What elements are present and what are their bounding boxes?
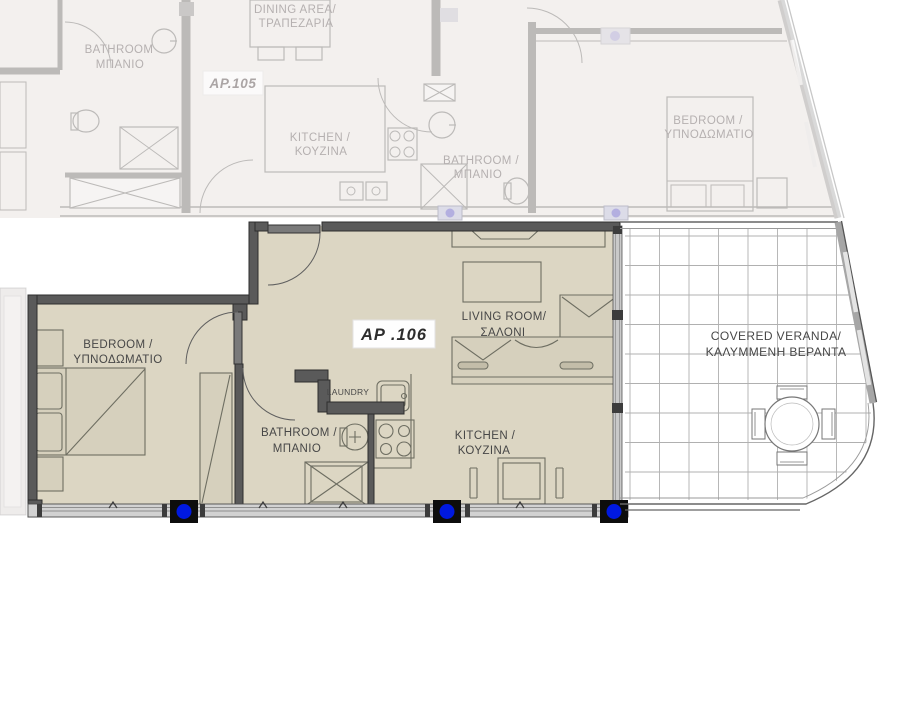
ap105-bathroom-right-label-l2: ΜΠΑΝΙΟ <box>454 169 502 181</box>
ap106-living-label-l2: ΣΑΛΟΝΙ <box>480 327 525 339</box>
apartment-ap106: BEDROOM / ΥΠΝΟΔΩΜΑΤΙΟ BATHROOM / ΜΠΑΝΙΟ … <box>28 222 628 523</box>
ap106-bedroom-label-l1: BEDROOM / <box>83 339 153 351</box>
ap105-kitchen-label-l2: ΚΟΥΖΙΝΑ <box>295 146 348 158</box>
ap106-bathroom-label-l1: BATHROOM / <box>261 427 337 439</box>
ap106-bedroom-label-l2: ΥΠΝΟΔΩΜΑΤΙΟ <box>73 354 162 366</box>
veranda-tile-grid <box>625 222 880 510</box>
veranda-label-l1: COVERED VERANDA/ <box>711 329 842 343</box>
wardrobe-icon <box>200 373 232 507</box>
ap105-kitchen-label-l1: KITCHEN / <box>290 132 351 144</box>
ap105-unit-label: AP.105 <box>203 71 263 95</box>
ap105-bathroom-left-label-l2: ΜΠΑΝΙΟ <box>96 59 144 71</box>
closet-icon <box>70 178 180 208</box>
bottom-window-band <box>28 502 628 517</box>
veranda-window-band <box>612 226 623 508</box>
ap106-bathroom-label-l2: ΜΠΑΝΙΟ <box>273 443 321 455</box>
ap105-bathroom-right-label-l1: BATHROOM / <box>443 155 519 167</box>
ap105-dining-label-l1: DINING AREA/ <box>254 4 337 16</box>
ap106-living-label-l1: LIVING ROOM/ <box>462 311 547 323</box>
faded-column-marker <box>440 8 458 22</box>
ap105-bathroom-left-label-l1: BATHROOM <box>85 44 154 56</box>
ap106-unit-label: AP .106 <box>353 320 435 348</box>
cabinet-icon <box>424 84 455 101</box>
veranda: COVERED VERANDA/ ΚΑΛΥΜΜΕΝΗ ΒΕΡΑΝΤΑ <box>620 221 880 510</box>
patio-table-icon <box>752 386 835 465</box>
ap106-kitchen-label-l1: KITCHEN / <box>455 430 516 442</box>
ap106-laundry-label: LAUNDRY <box>327 387 370 397</box>
ap105-bedroom-label-l2: ΥΠΝΟΔΩΜΑΤΙΟ <box>664 129 753 141</box>
veranda-label-l2: ΚΑΛΥΜΜΕΝΗ ΒΕΡΑΝΤΑ <box>706 345 847 359</box>
floor-plan: BATHROOM ΜΠΑΝΙΟ DINING AREA/ ΤΡΑΠΕΖΑΡΙΑ … <box>0 0 901 714</box>
ap106-kitchen-label-l2: ΚΟΥΖΙΝΑ <box>458 445 511 457</box>
ap105-bedroom-label-l1: BEDROOM / <box>673 115 743 127</box>
ap105-dining-label-l2: ΤΡΑΠΕΖΑΡΙΑ <box>259 18 334 30</box>
floor-plan-canvas: BATHROOM ΜΠΑΝΙΟ DINING AREA/ ΤΡΑΠΕΖΑΡΙΑ … <box>0 0 901 714</box>
faded-column <box>179 2 194 16</box>
bed-icon <box>33 368 145 455</box>
svg-text:AP .106: AP .106 <box>360 326 427 344</box>
svg-text:AP.105: AP.105 <box>209 76 257 91</box>
